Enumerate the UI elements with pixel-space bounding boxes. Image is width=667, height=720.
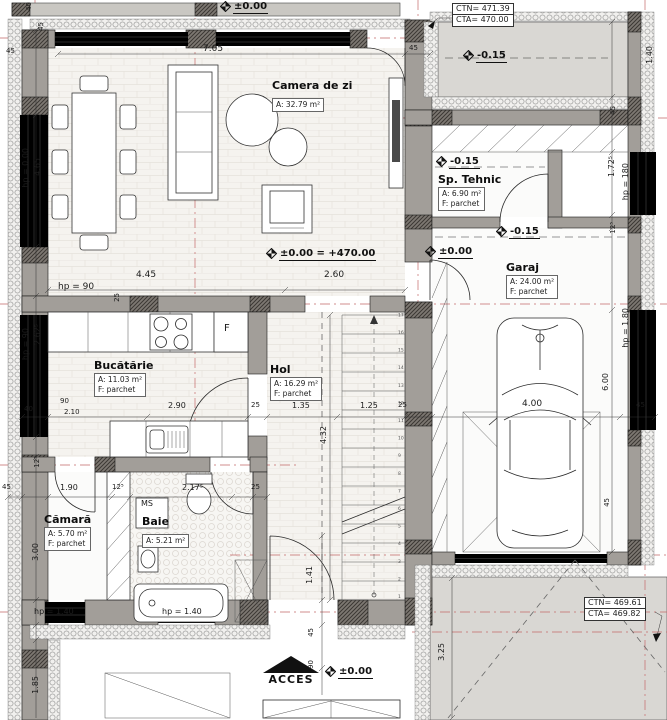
dim-kitchen-win-hp: hp = 90 <box>22 328 30 360</box>
dim-baie25: 25 <box>251 484 260 491</box>
dim-entry141: 1.41 <box>306 566 314 584</box>
elevation-marker-hol-door: ±0.00 <box>425 246 473 259</box>
chair <box>120 150 136 174</box>
level-value: ±0.00 <box>438 246 473 259</box>
tall-cabinet <box>107 472 130 600</box>
dim-cam45: 45 <box>2 484 11 491</box>
room-info-box: A: 5.70 m² F: parchet <box>44 527 91 551</box>
dim-right1725: 1.72⁵ <box>608 156 616 177</box>
stair-step-number: 10 <box>398 436 404 442</box>
elevation-marker-entry: ±0.00 <box>325 666 373 679</box>
coffee-table-small <box>269 128 307 166</box>
dim-k210: 2.10 <box>64 409 80 416</box>
tv-screen <box>392 100 400 162</box>
dim-garage-45: 45 <box>636 402 645 409</box>
coffee-table-large <box>226 94 278 146</box>
floor-plan-page: 1234567891011121314151617 <box>0 0 667 720</box>
level-icon <box>463 50 474 61</box>
room-floor: F: parchet <box>510 287 554 297</box>
elevation-marker-terrace: -0.15 <box>463 50 507 63</box>
stair-step-number: 2 <box>398 576 401 582</box>
dim-top-wall: 45 <box>409 45 418 52</box>
cta-value: CTA= 469.82 <box>585 609 645 619</box>
elevation-marker-main: ±0.00 = +470.00 <box>266 248 376 261</box>
dim-k40: 40 <box>24 406 33 413</box>
room-area: A: 5.21 m² <box>146 536 185 546</box>
dim-drive325: 3.25 <box>438 643 446 661</box>
room-label-sp-tehnic: Sp. Tehnic A: 6.90 m² F: parchet <box>438 174 501 211</box>
fridge-label: F <box>224 324 230 334</box>
dim-living-bottom-left: 4.45 <box>136 271 156 280</box>
dim-right-hp180: hp = 180 <box>622 163 630 200</box>
dim-cam300: 3.00 <box>32 543 40 561</box>
level-value: ±0.00 <box>338 666 373 679</box>
dim-hol135: 1.35 <box>292 402 310 410</box>
room-area: A: 5.70 m² <box>48 529 87 539</box>
level-icon <box>325 666 336 677</box>
dim-baie2175: 2.17⁵ <box>182 484 203 492</box>
room-name: Hol <box>270 364 322 376</box>
dim-drive45: 45 <box>604 498 611 507</box>
elevation-marker-garage: -0.15 <box>496 226 540 239</box>
stair-step-number: 16 <box>398 330 404 336</box>
dim-right-hp180b: hp = 1.80 <box>622 308 630 348</box>
benchmark-top: CTN= 471.39 CTA= 470.00 <box>452 3 514 27</box>
level-value: -0.15 <box>476 50 507 63</box>
sink-bowl <box>150 430 164 449</box>
dim-entry45: 45 <box>308 628 315 637</box>
room-label-camera-de-zi: Camera de zi A: 32.79 m² <box>272 80 352 112</box>
dim-living-left-hp: hp = 0.00 <box>22 148 30 188</box>
dining-table <box>72 93 116 233</box>
dim-stair-len: 4.32 <box>320 426 328 444</box>
washing-machine-label: MS <box>141 500 153 508</box>
dim-yard185: 1.85 <box>32 676 40 694</box>
chair <box>120 195 136 219</box>
level-value: -0.15 <box>449 156 480 169</box>
room-name: Cămară <box>44 514 91 526</box>
chair <box>52 150 68 174</box>
chair <box>80 76 108 91</box>
chair <box>80 235 108 250</box>
dim-wall25-left: 25 <box>114 293 121 302</box>
room-label-camara: Cămară A: 5.70 m² F: parchet <box>44 514 91 551</box>
dim-window-s: hp = 1.40 <box>162 608 202 616</box>
stair-step-number: 14 <box>398 365 404 371</box>
dim-corner-45b: 45 <box>6 48 15 55</box>
room-info-box: A: 6.90 m² F: parchet <box>438 187 485 211</box>
room-label-hol: Hol A: 16.29 m² F: parchet <box>270 364 322 401</box>
elevation-marker-top: ±0.00 <box>220 1 268 14</box>
dim-garage-len: 6.00 <box>602 373 610 391</box>
stair-step-number: 3 <box>398 559 401 565</box>
dim-living-hp90: hp = 90 <box>58 283 94 292</box>
dim-cam125-left: 12⁵ <box>34 456 41 468</box>
level-icon <box>425 246 436 257</box>
level-value: ±0.00 <box>233 1 268 14</box>
ctn-value: CTN= 469.61 <box>585 598 645 609</box>
room-info-box: A: 11.03 m² F: parchet <box>94 373 146 397</box>
ctn-value: CTN= 471.39 <box>453 4 513 15</box>
window-top-left <box>55 32 188 46</box>
dim-corner-40: 40 <box>26 2 33 11</box>
level-icon <box>220 1 231 12</box>
dim-k290: 2.90 <box>168 402 186 410</box>
stair-step-number: 6 <box>398 506 401 512</box>
room-area: A: 11.03 m² <box>98 375 142 385</box>
dim-window-sw: hp = 1.40 <box>34 608 74 616</box>
dim-cam190: 1.90 <box>60 484 78 492</box>
stair-step-number: 9 <box>398 453 401 459</box>
room-area: A: 24.00 m² <box>510 277 554 287</box>
room-info-box: A: 16.29 m² F: parchet <box>270 377 322 401</box>
dim-living-bottom-right: 2.60 <box>324 271 344 280</box>
cta-value: CTA= 470.00 <box>453 15 513 25</box>
benchmark-bottom: CTN= 469.61 CTA= 469.82 <box>584 597 646 621</box>
dim-stair-width: 1.25 <box>360 402 378 410</box>
dim-entry90: 90 <box>308 660 315 669</box>
chair <box>52 105 68 129</box>
dim-kitchen-win-len: 2.62⁵ <box>34 324 42 345</box>
entry-steps <box>105 673 400 718</box>
level-value: -0.15 <box>509 226 540 239</box>
dim-terrace140: 1.40 <box>646 46 654 64</box>
room-name: Bucătărie <box>94 360 154 372</box>
dim-stair-wall: 25 <box>398 402 407 409</box>
dim-right45: 45 <box>610 106 617 115</box>
window-top-right <box>216 32 350 46</box>
elevation-marker-sptehnic: -0.15 <box>436 156 480 169</box>
stair-step-number: 4 <box>398 541 401 547</box>
room-name: Camera de zi <box>272 80 352 92</box>
room-name: Garaj <box>506 262 558 274</box>
dim-right125: 12⁵ <box>610 222 617 234</box>
dim-living-top: 7.05 <box>203 45 223 54</box>
stair-step-number: 15 <box>398 348 404 354</box>
window-sptehnic-right <box>630 152 656 215</box>
room-info-box: A: 24.00 m² F: parchet <box>506 275 558 299</box>
dim-cam125: 12⁵ <box>112 484 124 491</box>
room-name: Sp. Tehnic <box>438 174 501 186</box>
stair-step-number: 17 <box>398 312 404 318</box>
chair <box>120 105 136 129</box>
room-label-bucatarie: Bucătărie A: 11.03 m² F: parchet <box>94 360 154 397</box>
dim-corner-45: 45 <box>38 22 45 31</box>
room-area: A: 32.79 m² <box>276 100 320 110</box>
stair-step-number: 8 <box>398 471 401 477</box>
chair <box>52 195 68 219</box>
room-floor: F: parchet <box>48 539 87 549</box>
room-floor: F: parchet <box>442 199 481 209</box>
dim-living-left-len: 4.65 <box>34 158 42 176</box>
level-icon <box>266 248 277 259</box>
stair-step-number: 1 <box>398 594 401 600</box>
armchair-seat <box>270 191 304 223</box>
acces-label: ACCES <box>258 673 324 686</box>
sofa-seat <box>176 72 212 193</box>
level-icon <box>496 226 507 237</box>
room-area: A: 16.29 m² <box>274 379 318 389</box>
dim-k90: 90 <box>60 398 69 405</box>
room-floor: F: parchet <box>274 389 318 399</box>
dim-k25: 25 <box>251 402 260 409</box>
fridge <box>214 312 248 352</box>
room-floor: F: parchet <box>98 385 142 395</box>
stair-step-number: 13 <box>398 383 404 389</box>
room-label-garaj: Garaj A: 24.00 m² F: parchet <box>506 262 558 299</box>
window-garage-right <box>630 310 656 430</box>
room-name: Baie <box>142 516 189 528</box>
car <box>489 318 591 548</box>
room-area: A: 6.90 m² <box>442 189 481 199</box>
stair-step-number: 5 <box>398 524 401 530</box>
level-value: ±0.00 = +470.00 <box>279 248 376 261</box>
room-info-box: A: 5.21 m² <box>142 534 189 548</box>
stair-step-number: 7 <box>398 488 401 494</box>
dim-garage-width: 4.00 <box>522 400 542 409</box>
room-info-box: A: 32.79 m² <box>272 98 324 112</box>
level-icon <box>436 156 447 167</box>
room-label-baie: Baie A: 5.21 m² <box>142 516 189 548</box>
